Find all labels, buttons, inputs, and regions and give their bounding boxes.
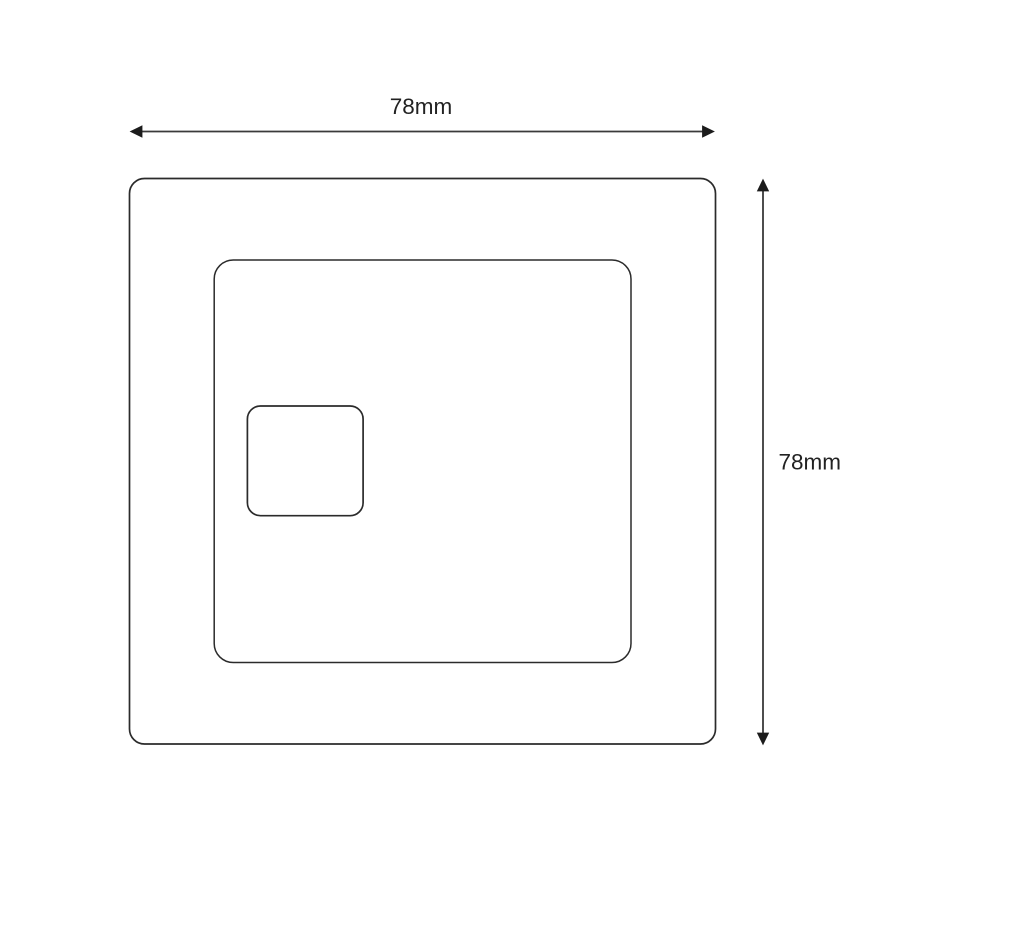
- svg-text:78mm: 78mm: [390, 94, 453, 119]
- svg-text:78mm: 78mm: [779, 450, 842, 475]
